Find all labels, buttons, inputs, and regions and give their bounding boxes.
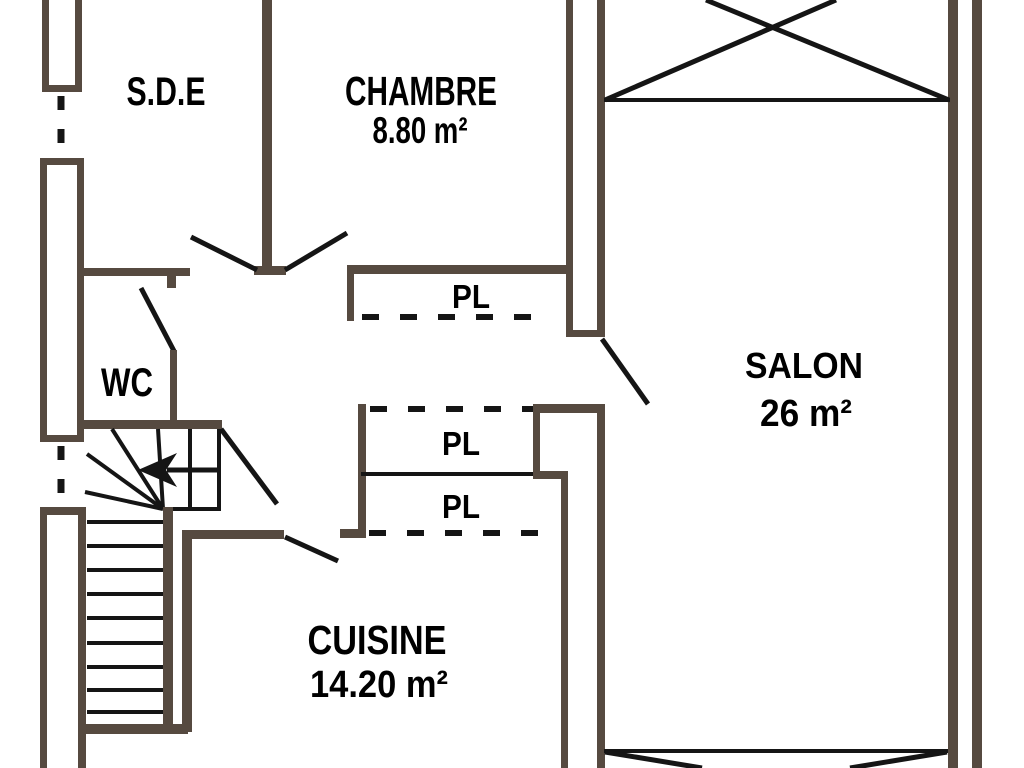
salon-west-wall (533, 404, 605, 768)
room-area-cuisine: 14.20 m² (310, 664, 448, 706)
wall-segment (182, 530, 284, 539)
room-label-sde: S.D.E (127, 70, 206, 114)
wall-segment (597, 404, 605, 768)
wall-segment (80, 724, 188, 734)
door-leaf (141, 288, 174, 351)
room-label-chambre: CHAMBRE (345, 68, 497, 114)
wall-segment (42, 85, 82, 92)
staircase (80, 429, 221, 734)
stair-treads (87, 522, 163, 712)
door-leaf (285, 233, 347, 270)
room-label-wc: WC (101, 361, 153, 405)
floor-plan-drawing: S.D.E CHAMBRE 8.80 m² SALON 26 m² WC CUI… (0, 0, 1024, 768)
wall-segment (561, 471, 568, 768)
outer-right-wall (948, 0, 982, 768)
wall-segment (42, 0, 49, 92)
window-cross-line (850, 752, 947, 768)
wall-segment (347, 265, 354, 321)
closet-label-hall-lower: PL (442, 488, 480, 525)
door-leaf (602, 339, 648, 404)
wall-segment (597, 0, 605, 337)
door-stop-tick (167, 276, 176, 288)
wall-segment (182, 530, 192, 732)
room-area-salon: 26 m² (760, 393, 852, 435)
wall-segment (254, 266, 286, 275)
closet-label-chambre: PL (452, 278, 490, 315)
wall-segment (262, 0, 272, 268)
door-leaf (221, 429, 277, 504)
wall-segment (533, 404, 603, 413)
wall-segment (40, 507, 47, 768)
wall-segment (77, 158, 84, 442)
wall-segment (40, 158, 47, 442)
wall-segment (75, 0, 82, 92)
wall-segment (948, 0, 958, 768)
window-cross-line (605, 0, 836, 100)
room-label-cuisine: CUISINE (308, 617, 447, 663)
wall-segment (78, 268, 190, 276)
room-area-chambre: 8.80 m² (373, 110, 468, 151)
chambre-salon-wall (566, 0, 648, 404)
sde-chambre-wall (191, 0, 347, 275)
wall-segment (972, 0, 982, 768)
window-cross-line (605, 752, 702, 768)
floor-plan: S.D.E CHAMBRE 8.80 m² SALON 26 m² WC CUI… (0, 0, 1024, 768)
window-bay-top (604, 0, 950, 100)
window-cross-line (706, 0, 949, 100)
wall-segment (163, 507, 173, 732)
wall-segment (566, 330, 605, 337)
closet-label-hall-upper: PL (442, 425, 480, 462)
wall-segment (533, 404, 540, 479)
window-bay-bottom (604, 751, 948, 768)
wall-segment (358, 404, 366, 537)
wall-segment (170, 350, 177, 422)
wall-segment (566, 0, 573, 337)
door-leaf (285, 537, 338, 561)
room-label-salon: SALON (745, 345, 863, 386)
outer-left-wall (40, 0, 86, 768)
wall-segment (78, 420, 222, 429)
wall-segment (40, 435, 84, 442)
door-leaf (191, 237, 257, 270)
wall-segment (347, 265, 572, 274)
